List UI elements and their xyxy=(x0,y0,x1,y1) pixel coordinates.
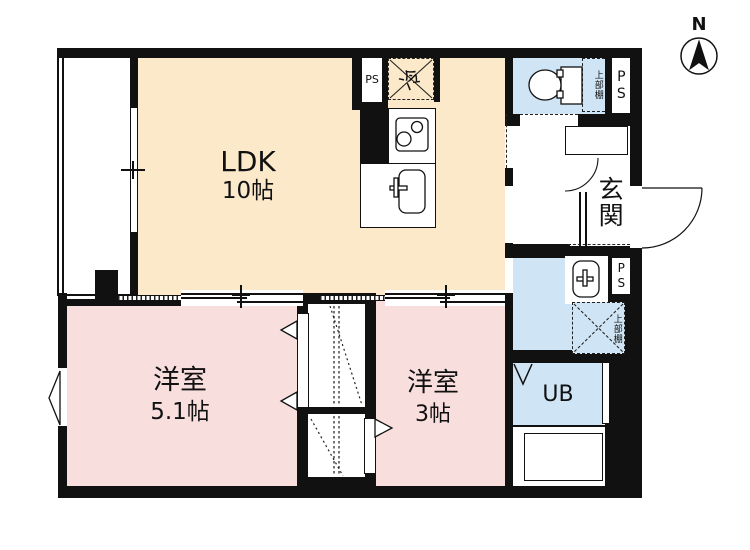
hatch-strip-left xyxy=(118,295,181,301)
ps-label: PS xyxy=(365,74,379,86)
washing-machine-pan xyxy=(524,433,603,481)
upper-shelf-washroom: 上部棚 xyxy=(572,302,625,354)
hall-washroom-line xyxy=(513,244,570,246)
kitchen-counter-upper xyxy=(388,108,436,165)
entrance-step-line-1 xyxy=(579,192,581,247)
washbasin-unit xyxy=(565,256,608,304)
refrigerator-label: 冷 xyxy=(397,65,426,94)
ps-box-kitchen: PS xyxy=(362,58,382,102)
north-compass-icon xyxy=(681,38,717,74)
ldk-label: LDK xyxy=(188,146,308,178)
ps-label: PS xyxy=(614,69,629,103)
balcony-outer-line xyxy=(57,48,59,296)
wall-top xyxy=(58,48,642,58)
ldk-window-tick-v xyxy=(132,161,134,179)
wall-ldk-right-mid xyxy=(505,168,513,186)
bedroom-main-area-label: 5.1帖 xyxy=(120,398,240,426)
wall-bottom xyxy=(58,486,630,498)
ldk-area-label: 10帖 xyxy=(188,177,308,205)
ldk-hall-door-opening xyxy=(505,186,513,243)
wall-kitchen-left xyxy=(360,110,388,163)
ps-box-mid-right: PS xyxy=(612,258,630,294)
front-door-swing xyxy=(642,188,702,248)
closet-door-strip-left xyxy=(297,313,309,408)
floor-plan: PS PS PS 冷 上部棚 上部棚 xyxy=(0,0,750,550)
bedroom-small-area-label: 3帖 xyxy=(373,401,493,428)
bedroom-small-label: 洋室 xyxy=(373,369,493,399)
slider-tick-1v xyxy=(240,285,242,308)
wall-bedroom-top-left xyxy=(58,299,118,306)
upper-shelf-label: 上部棚 xyxy=(592,70,601,100)
ub-top-line xyxy=(512,361,610,363)
bedroom-window-opening xyxy=(58,368,67,426)
entrance-label: 玄関 xyxy=(592,166,626,238)
upper-shelf-label: 上部棚 xyxy=(611,314,620,344)
wall-fridge-right-stub xyxy=(434,58,440,102)
ub-bottom-line xyxy=(512,425,610,427)
closet-upper xyxy=(308,304,365,407)
ub-right-strip xyxy=(602,362,610,424)
kitchen-counter-lower xyxy=(360,163,436,228)
wall-bedroom-small-right xyxy=(505,293,513,486)
wall-balcony-corner xyxy=(95,270,118,300)
wall-ldk-left-upper xyxy=(130,58,138,108)
wall-ldk-left-lower xyxy=(130,232,138,299)
shoe-cabinet xyxy=(565,126,628,155)
slider-tick-2h xyxy=(437,294,455,296)
bedroom-main-label: 洋室 xyxy=(120,366,240,396)
ps-box-top-right: PS xyxy=(612,58,630,113)
ps-label: PS xyxy=(615,261,628,291)
ldk-wall-dashed-segment xyxy=(506,114,508,168)
upper-shelf-toilet: 上部棚 xyxy=(582,58,605,112)
toilet-door-opening xyxy=(520,114,578,126)
north-label: N xyxy=(687,14,711,36)
entrance-step-line-2 xyxy=(585,192,587,247)
wall-ldk-right-upper xyxy=(505,48,513,114)
front-door-opening xyxy=(630,186,642,248)
hall-washroom-dashed xyxy=(568,244,630,246)
hatch-strip-right xyxy=(320,295,385,301)
slider-tick-1h xyxy=(232,294,250,296)
slider-tick-2v xyxy=(445,285,447,308)
closet-lower xyxy=(308,414,365,477)
balcony-inner-line xyxy=(62,48,64,296)
unit-bath-label: UB xyxy=(528,382,588,408)
sliding-door-bedroom-main xyxy=(181,290,303,306)
balcony-bottom-line xyxy=(57,294,133,296)
